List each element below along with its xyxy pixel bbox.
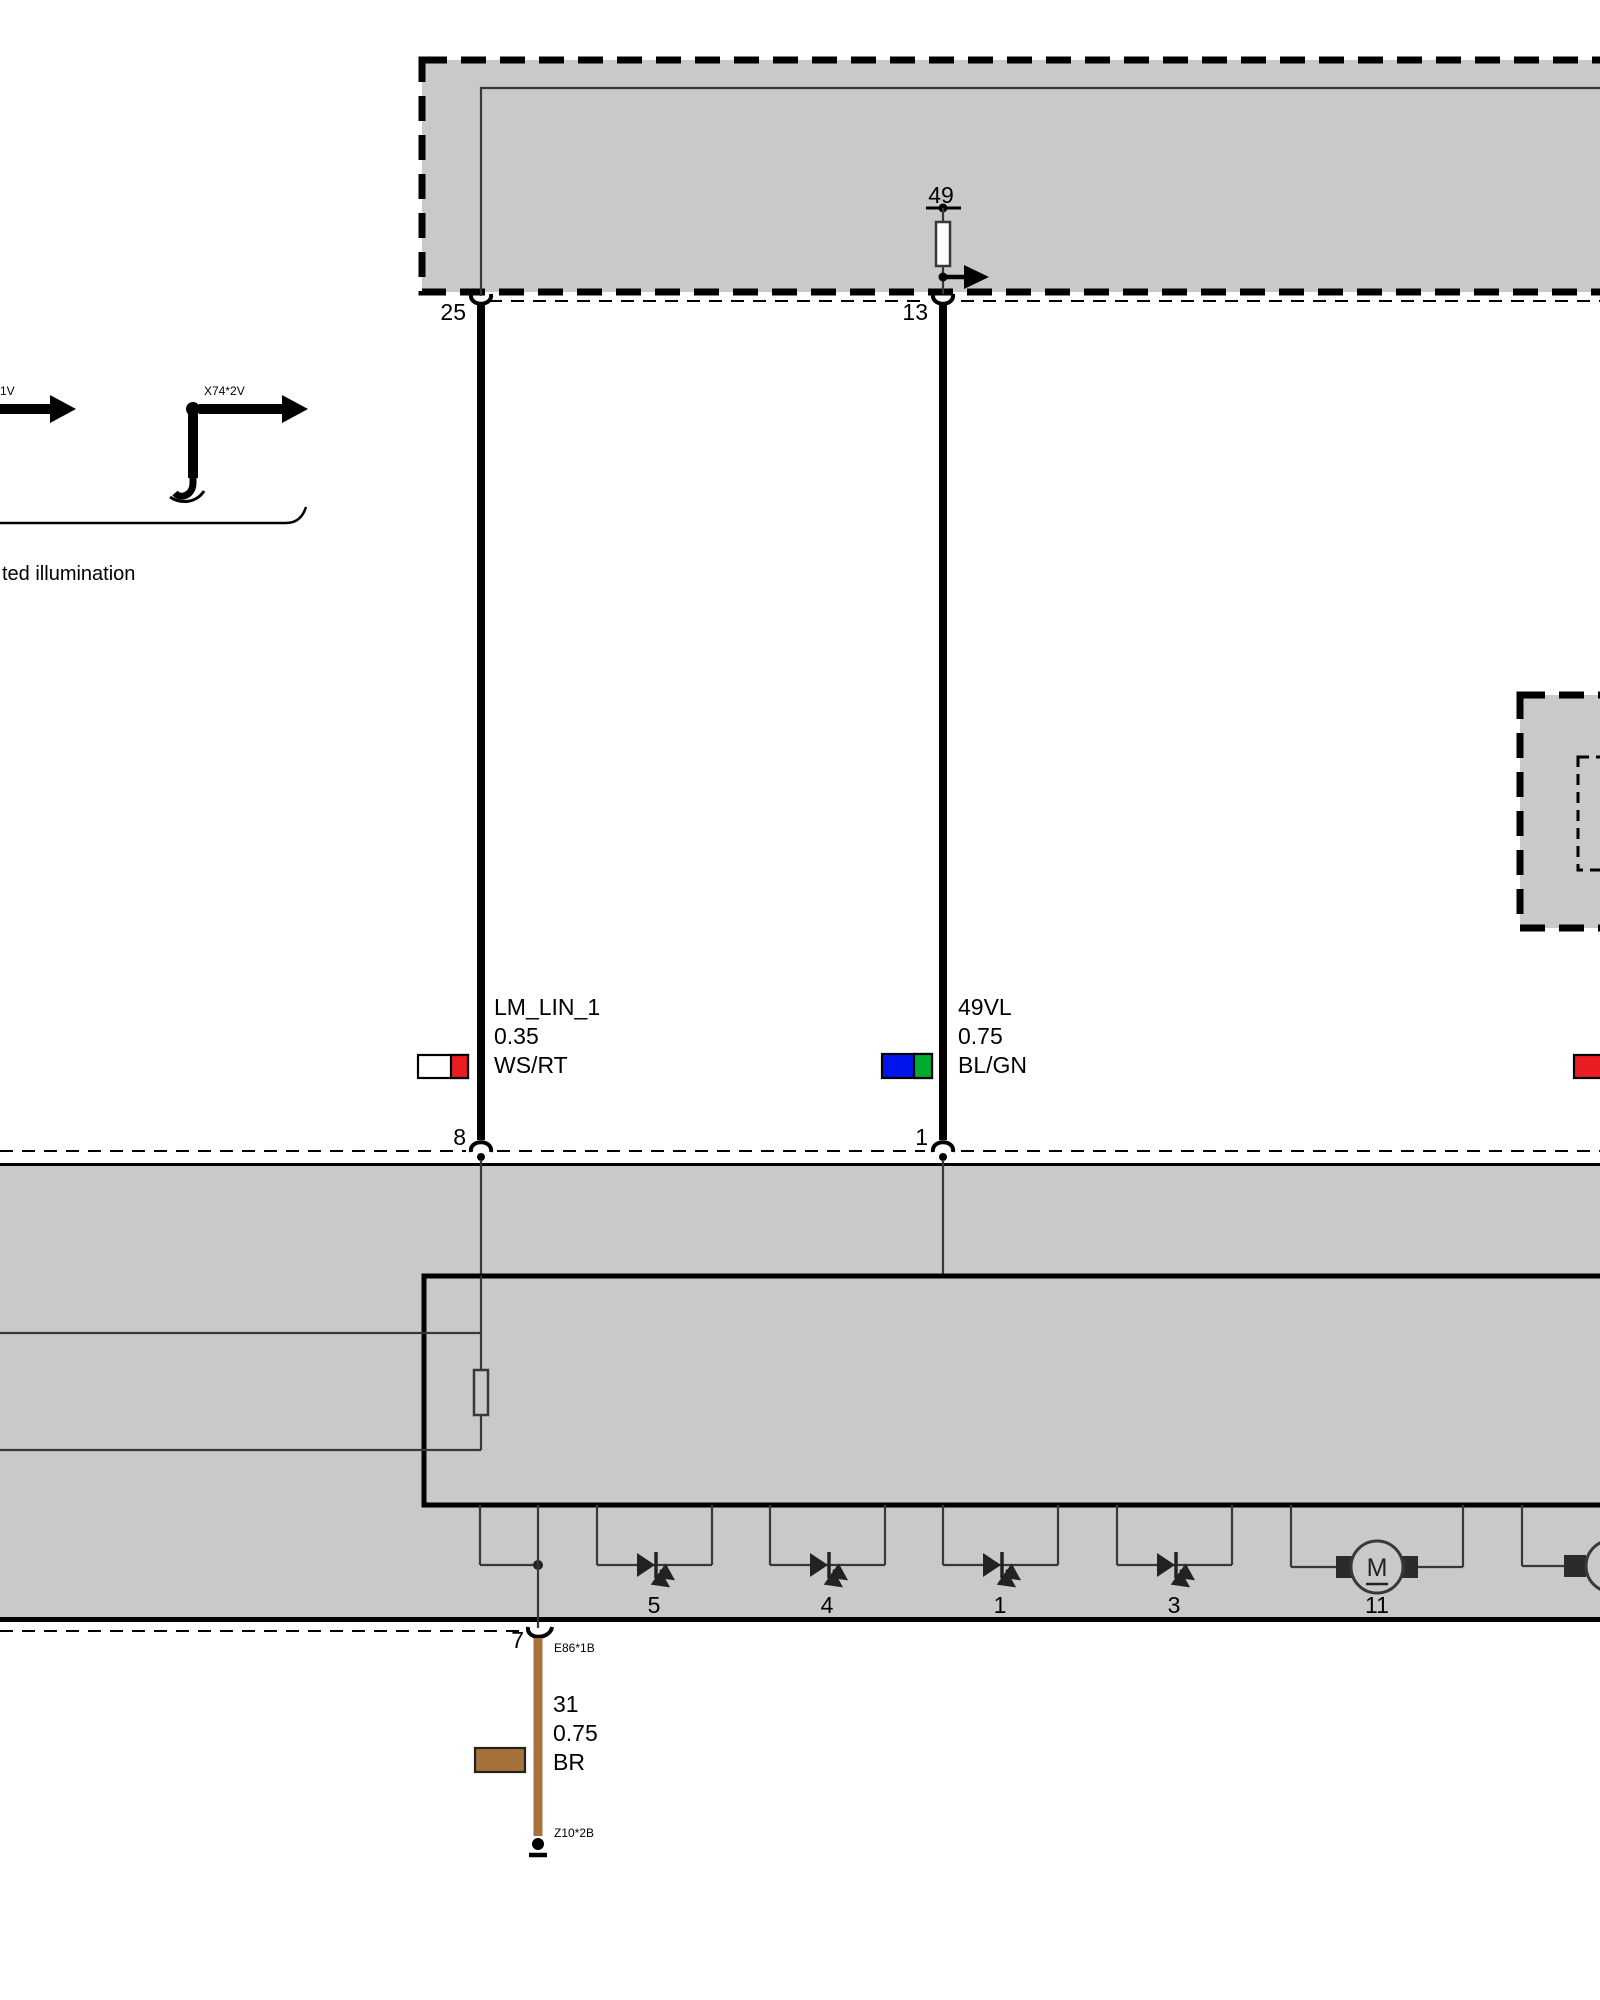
ref-arrow-left-icon: [50, 395, 76, 423]
wire-color-box-bl-gn-stripe: [914, 1054, 932, 1078]
led-3-label: 3: [1168, 1592, 1181, 1618]
connector-z10-label: Z10*2B: [554, 1826, 594, 1840]
ref-arrow-left-label: 1V: [0, 384, 15, 398]
wire-gauge-label: 0.75: [958, 1023, 1003, 1049]
wire-color-box-ws-rt-stripe: [451, 1055, 468, 1078]
pin-7-label: 7: [511, 1627, 524, 1653]
top-module-box: [422, 60, 1600, 292]
resistor-icon: [936, 222, 950, 266]
wire-color-box-rt-partial: [1574, 1055, 1600, 1078]
wire-color-box-br: [475, 1748, 525, 1772]
wire-color-code-label: BL/GN: [958, 1052, 1027, 1078]
connector-e86-label: E86*1B: [554, 1641, 595, 1655]
wire-end-hook-icon: [175, 470, 193, 496]
ground-point-icon: [529, 1838, 547, 1855]
ref-arrow-right-icon: [282, 395, 308, 423]
pin-13-label: 13: [902, 299, 928, 325]
right-module-box: [1520, 695, 1600, 928]
wiring-diagram-page: 49 25 13 1V X74*2V ted illumination LM_: [0, 0, 1600, 2000]
led-1-label: 1: [994, 1592, 1007, 1618]
pin-25-label: 25: [440, 299, 466, 325]
wire-color-code-label: WS/RT: [494, 1052, 568, 1078]
wire-name-label: LM_LIN_1: [494, 994, 600, 1020]
resistor-icon: [474, 1370, 488, 1415]
motor-11-label: 11: [1365, 1592, 1389, 1618]
wire-name-label: 49VL: [958, 994, 1012, 1020]
wire-gauge-label: 0.75: [553, 1720, 598, 1746]
wire-gauge-label: 0.35: [494, 1023, 539, 1049]
connector-socket-8-icon: [471, 1142, 491, 1152]
illumination-caption: ted illumination: [2, 563, 135, 585]
connector-socket-1-icon: [933, 1142, 953, 1152]
led-5-label: 5: [648, 1592, 661, 1618]
wire-49vl-labels: 49VL 0.75 BL/GN: [882, 994, 1027, 1078]
ref-arrow-right-label: X74*2V: [204, 384, 245, 398]
wiring-diagram: 49 25 13 1V X74*2V ted illumination LM_: [0, 0, 1600, 2000]
wire-name-label: 31: [553, 1691, 579, 1717]
wire-color-code-label: BR: [553, 1749, 585, 1775]
pin-1-label: 1: [915, 1124, 928, 1150]
connector-socket-7-icon: [528, 1627, 552, 1637]
motor-letter: M: [1367, 1554, 1388, 1582]
wire-lm-lin-1-labels: LM_LIN_1 0.35 WS/RT: [418, 994, 600, 1078]
grouping-bracket: [0, 507, 306, 523]
pin-8-label: 8: [453, 1124, 466, 1150]
led-4-label: 4: [821, 1592, 834, 1618]
reference-arrows: 1V X74*2V ted illumination: [0, 384, 308, 585]
